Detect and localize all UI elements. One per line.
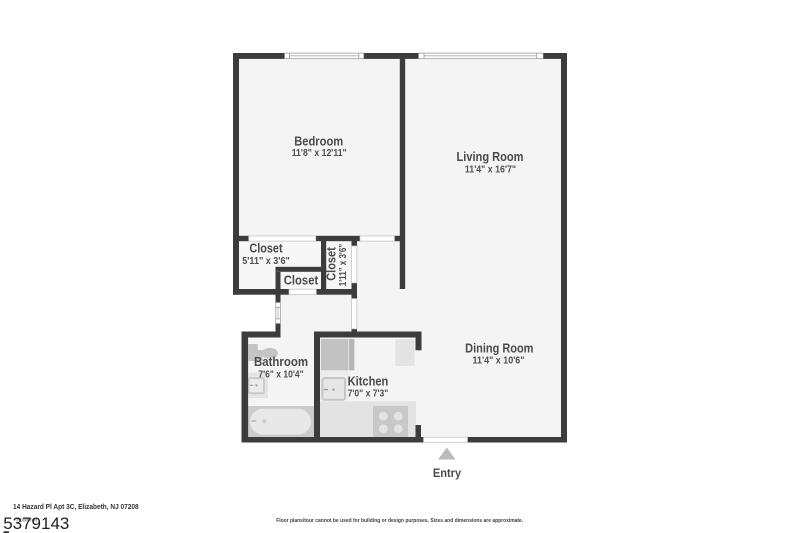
- svg-text:11'8" x 12'11": 11'8" x 12'11": [292, 148, 347, 159]
- svg-text:Bedroom: Bedroom: [294, 133, 343, 148]
- svg-text:14 Hazard Pl Apt 3C, Elizabeth: 14 Hazard Pl Apt 3C, Elizabeth, NJ 07208: [13, 504, 139, 511]
- svg-text:Closet: Closet: [324, 247, 339, 281]
- svg-text:5'11" x 3'6": 5'11" x 3'6": [242, 256, 290, 267]
- svg-text:Entry: Entry: [433, 466, 461, 480]
- svg-text:Closet: Closet: [249, 242, 283, 256]
- svg-text:7'6" x 10'4": 7'6" x 10'4": [258, 369, 304, 380]
- svg-text:Closet: Closet: [284, 273, 319, 287]
- svg-text:Kitchen: Kitchen: [348, 374, 389, 389]
- svg-text:Bathroom: Bathroom: [254, 354, 308, 369]
- svg-text:Floor plans/tour cannot be use: Floor plans/tour cannot be used for buil…: [276, 518, 523, 524]
- svg-text:Living Room: Living Room: [457, 149, 524, 164]
- svg-text:7'0" x 7'3": 7'0" x 7'3": [348, 388, 389, 399]
- svg-text:11'4" x 16'7": 11'4" x 16'7": [465, 165, 516, 176]
- svg-text:1'11" x 3'6": 1'11" x 3'6": [338, 244, 349, 287]
- svg-text:5379143: 5379143: [3, 514, 69, 533]
- svg-text:Dining Room: Dining Room: [465, 341, 533, 356]
- svg-text:11'4" x 10'6": 11'4" x 10'6": [473, 356, 525, 367]
